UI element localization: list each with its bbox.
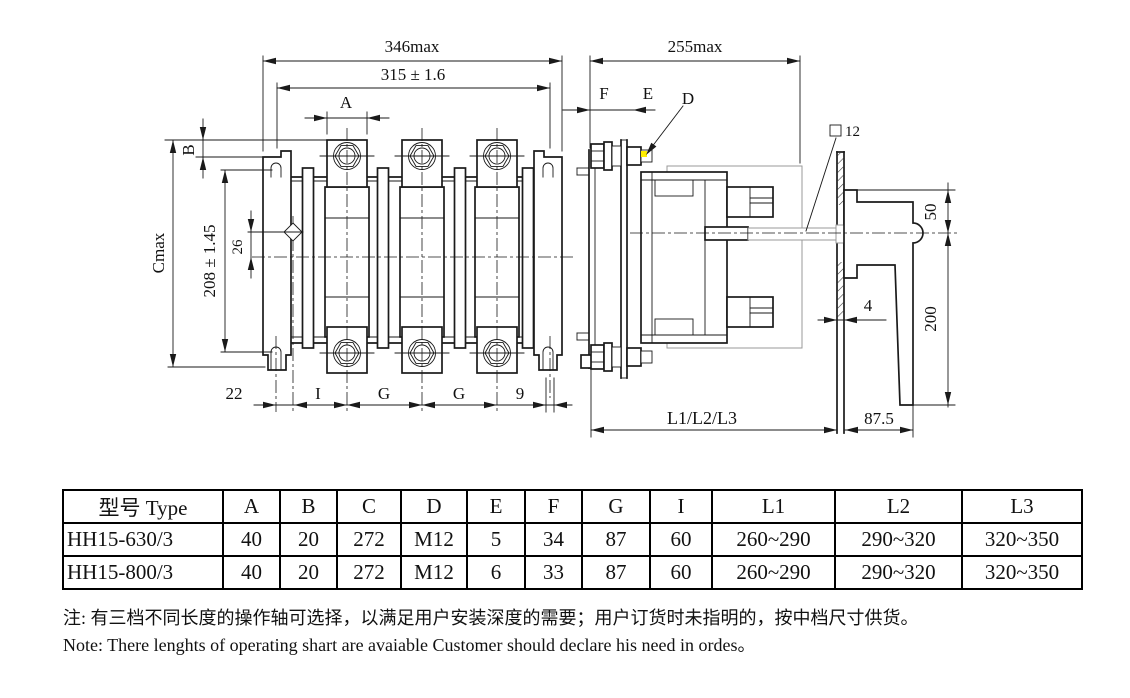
- dim-label-g1: G: [378, 384, 390, 403]
- barrier-plate: [523, 168, 534, 348]
- panel-hatch: [837, 262, 844, 317]
- dim-label-9: 9: [516, 384, 525, 403]
- spec-cell: 87: [582, 523, 650, 556]
- col-header: L2: [835, 490, 962, 523]
- col-header: G: [582, 490, 650, 523]
- dim-label-208: 208 ± 1.45: [200, 224, 219, 297]
- spec-cell: 6: [467, 556, 525, 589]
- spec-cell: 5: [467, 523, 525, 556]
- operating-shaft-base: [705, 227, 748, 240]
- spec-table-container: 型号 Type A B C D E F G I L1 L2 L3 HH15-63…: [62, 489, 1083, 590]
- dim-label-i: I: [315, 384, 321, 403]
- side-view: 255max F E D 12 50 200 4 87.5 L1/L2/L3: [563, 37, 957, 437]
- end-plate-right: [534, 151, 562, 370]
- dim-label-315: 315 ± 1.6: [381, 65, 446, 84]
- spec-cell: 290~320: [835, 523, 962, 556]
- dim-label-87-5: 87.5: [864, 409, 894, 428]
- dim-label-200: 200: [921, 306, 940, 332]
- highlight-dot: [641, 151, 647, 157]
- dim-label-255max: 255max: [668, 37, 723, 56]
- dim-label-cmax: Cmax: [149, 232, 168, 273]
- panel-hatch: [837, 153, 844, 205]
- dim-label-26: 26: [230, 239, 246, 255]
- spec-cell: 20: [280, 556, 337, 589]
- col-header: D: [401, 490, 467, 523]
- dim-label-g2: G: [453, 384, 465, 403]
- technical-drawing-page: 346max 315 ± 1.6 A B Cmax 208 ± 1.45 26 …: [0, 0, 1130, 698]
- col-header: L1: [712, 490, 835, 523]
- spec-cell: 272: [337, 556, 401, 589]
- spec-cell-model: HH15-630/3: [63, 523, 223, 556]
- spec-cell: 260~290: [712, 556, 835, 589]
- spec-cell: 60: [650, 523, 712, 556]
- spec-cell: 20: [280, 523, 337, 556]
- col-header: A: [223, 490, 280, 523]
- dim-label-shaft-length: L1/L2/L3: [667, 408, 737, 428]
- barrier-plate: [455, 168, 466, 348]
- front-view: 346max 315 ± 1.6 A B Cmax 208 ± 1.45 26 …: [149, 37, 575, 412]
- dim-label-square12: 12: [845, 124, 860, 140]
- engineering-drawing: 346max 315 ± 1.6 A B Cmax 208 ± 1.45 26 …: [0, 0, 1130, 480]
- dim-label-50: 50: [921, 204, 940, 221]
- spec-cell: 33: [525, 556, 582, 589]
- table-row: HH15-800/3 40 20 272 M12 6 33 87 60 260~…: [63, 556, 1082, 589]
- spec-cell: 260~290: [712, 523, 835, 556]
- barrier-plate: [378, 168, 389, 348]
- col-header: E: [467, 490, 525, 523]
- spec-cell: 272: [337, 523, 401, 556]
- spec-cell: 40: [223, 523, 280, 556]
- note-zh: 注: 有三档不同长度的操作轴可选择，以满足用户安装深度的需要；用户订货时未指明的…: [63, 604, 919, 630]
- dim-label-22: 22: [226, 384, 243, 403]
- col-header: 型号 Type: [63, 490, 223, 523]
- spec-table: 型号 Type A B C D E F G I L1 L2 L3 HH15-63…: [62, 489, 1083, 590]
- note-en: Note: There lenghts of operating shart a…: [63, 631, 755, 657]
- dim-label-f: F: [599, 84, 608, 103]
- dim-label-4: 4: [864, 296, 873, 315]
- end-plate-left: [263, 151, 291, 370]
- spec-cell-model: HH15-800/3: [63, 556, 223, 589]
- spec-cell: 290~320: [835, 556, 962, 589]
- col-header: C: [337, 490, 401, 523]
- operating-handle: [844, 190, 923, 405]
- spec-cell: 40: [223, 556, 280, 589]
- dim-label-b: B: [179, 144, 198, 155]
- col-header: F: [525, 490, 582, 523]
- spec-cell: M12: [401, 556, 467, 589]
- dim-label-e: E: [643, 84, 653, 103]
- spec-cell: M12: [401, 523, 467, 556]
- table-header-row: 型号 Type A B C D E F G I L1 L2 L3: [63, 490, 1082, 523]
- spec-cell: 34: [525, 523, 582, 556]
- col-header: I: [650, 490, 712, 523]
- spec-cell: 87: [582, 556, 650, 589]
- switch-body-side: [641, 172, 727, 343]
- col-header: B: [280, 490, 337, 523]
- spec-cell: 320~350: [962, 523, 1082, 556]
- table-row: HH15-630/3 40 20 272 M12 5 34 87 60 260~…: [63, 523, 1082, 556]
- square-section-icon: [830, 125, 841, 136]
- spec-cell: 320~350: [962, 556, 1082, 589]
- dim-label-d: D: [682, 89, 694, 108]
- barrier-plate: [303, 168, 314, 348]
- col-header: L3: [962, 490, 1082, 523]
- dim-label-346max: 346max: [385, 37, 440, 56]
- spec-cell: 60: [650, 556, 712, 589]
- dim-label-a: A: [340, 93, 353, 112]
